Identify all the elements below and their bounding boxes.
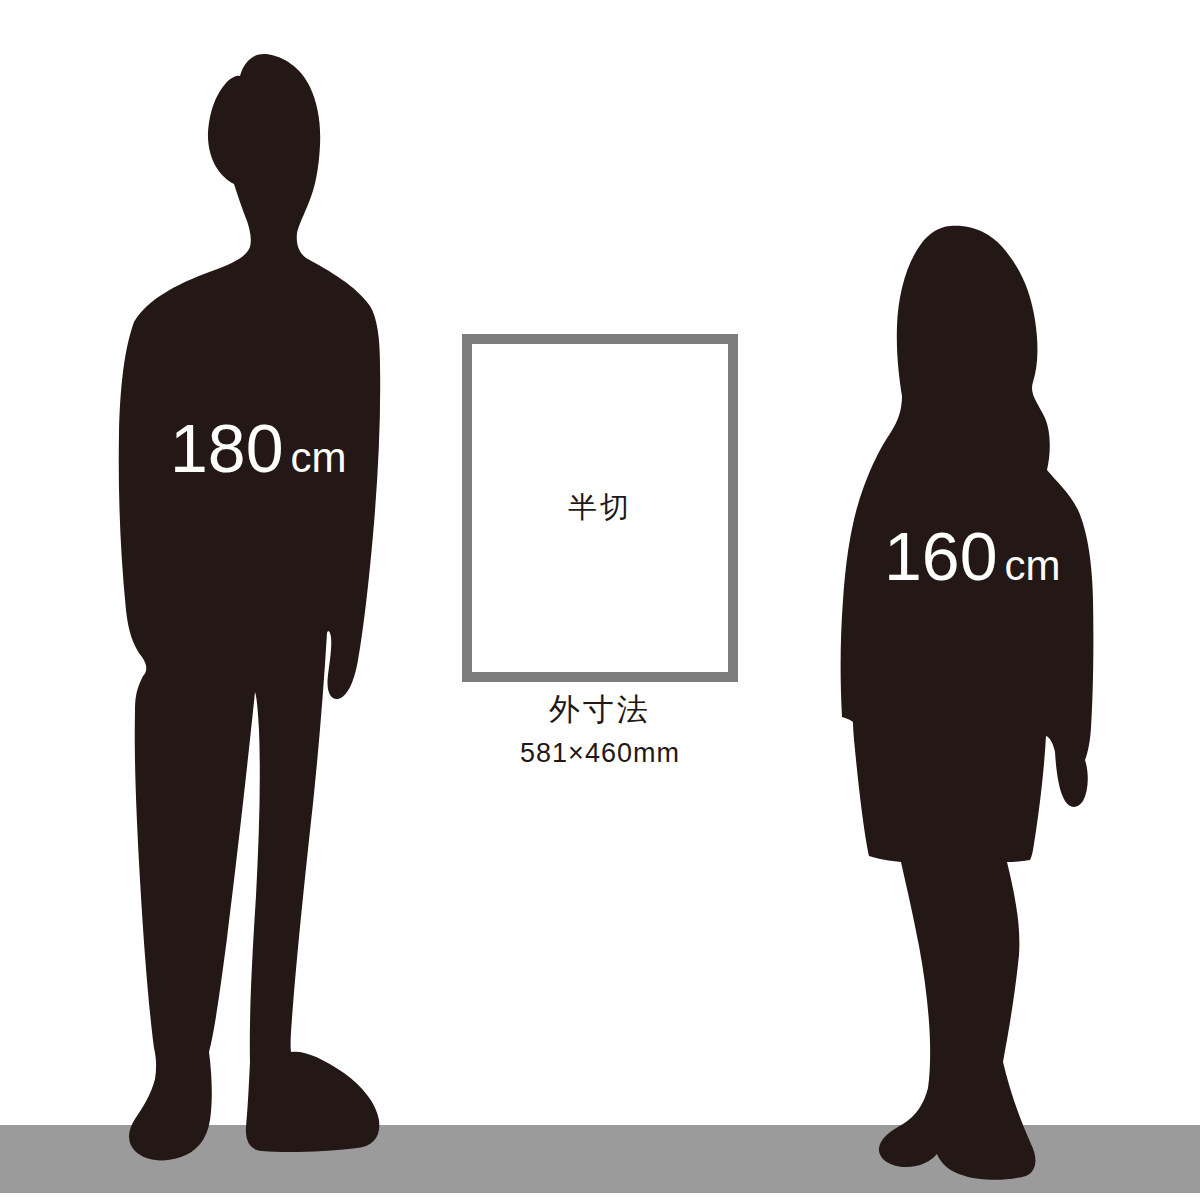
size-comparison-illustration: 180 cm 160 cm 半切 外寸法 581×460mm xyxy=(0,0,1200,1200)
frame-size-label: 半切 xyxy=(568,488,632,528)
outer-dimensions-title: 外寸法 xyxy=(0,694,1200,725)
man-silhouette xyxy=(119,54,380,1160)
man-height-unit: cm xyxy=(290,437,346,479)
outer-dimensions-value: 581×460mm xyxy=(0,740,1200,767)
woman-height-value: 160 xyxy=(884,522,997,590)
woman-height-unit: cm xyxy=(1004,545,1060,587)
man-height-label: 180 cm xyxy=(170,414,346,482)
size-frame: 半切 xyxy=(462,334,738,682)
man-height-value: 180 xyxy=(170,414,283,482)
woman-height-label: 160 cm xyxy=(884,522,1060,590)
outer-dimensions-caption: 外寸法 581×460mm xyxy=(0,694,1200,767)
